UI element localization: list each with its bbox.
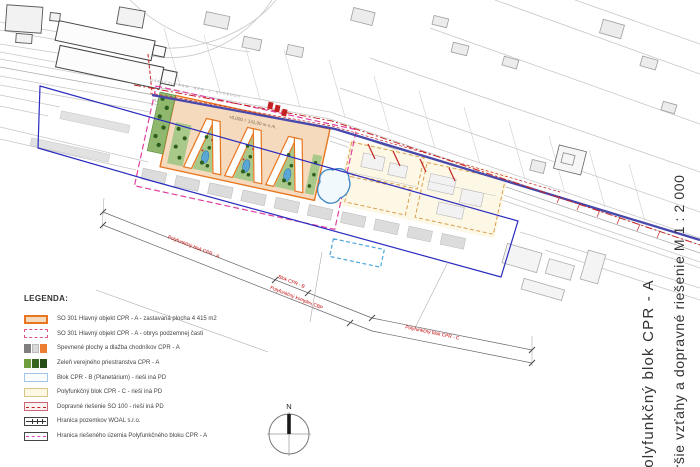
parcel-boundary-swatch — [24, 417, 48, 426]
legend: LEGENDA: SO 301 Hlavný objekt CPR - A - … — [24, 294, 334, 443]
legend-item-block-b: Blok CPR - B (Planetárium) - rieši iná P… — [24, 370, 334, 385]
block-b-swatch — [24, 373, 48, 382]
block-c-swatch — [24, 388, 48, 397]
sheet-title: Širšie vzťahy a dopravné riešenie M 1 : … — [671, 174, 687, 467]
legend-item-underground-outline: SO 301 Hlavný objekt CPR - A - obrys pod… — [24, 327, 334, 342]
site-boundary-swatch — [24, 432, 48, 441]
legend-title: LEGENDA: — [24, 294, 334, 303]
legend-item-block-c: Polyfunkčný blok CPR - C - rieši iná PD — [24, 385, 334, 400]
paved-areas-swatch — [24, 344, 48, 353]
dim-label-block-a: Polyfunkčný blok CPR - A — [167, 234, 221, 260]
legend-item-traffic-design: Dopravné riešenie SO 100 - rieši iná PD — [24, 400, 334, 415]
legend-item-public-greenery: Zeleň verejného priestranstva CPR - A — [24, 356, 334, 371]
site-plan-sheet: VÚVH NÁBREŽIE ARM. GEN. L. SVOBODU — [0, 0, 700, 467]
traffic-design-swatch — [24, 402, 48, 411]
public-greenery-swatch — [24, 359, 48, 368]
legend-item-parcel-boundary: Hranica pozemkov WOAL s.r.o. — [24, 414, 334, 429]
legend-item-site-boundary: Hranica riešeného územia Polyfunkčného b… — [24, 429, 334, 444]
underground-outline-swatch — [24, 329, 48, 338]
project-title: Polyfunkčný blok CPR - A — [640, 279, 657, 467]
legend-item-paved-areas: Spevnené plochy a dlažba chodníkov CPR -… — [24, 341, 334, 356]
legend-item-main-object: SO 301 Hlavný objekt CPR - A - zastavaná… — [24, 312, 334, 327]
main-object-swatch — [24, 315, 48, 324]
